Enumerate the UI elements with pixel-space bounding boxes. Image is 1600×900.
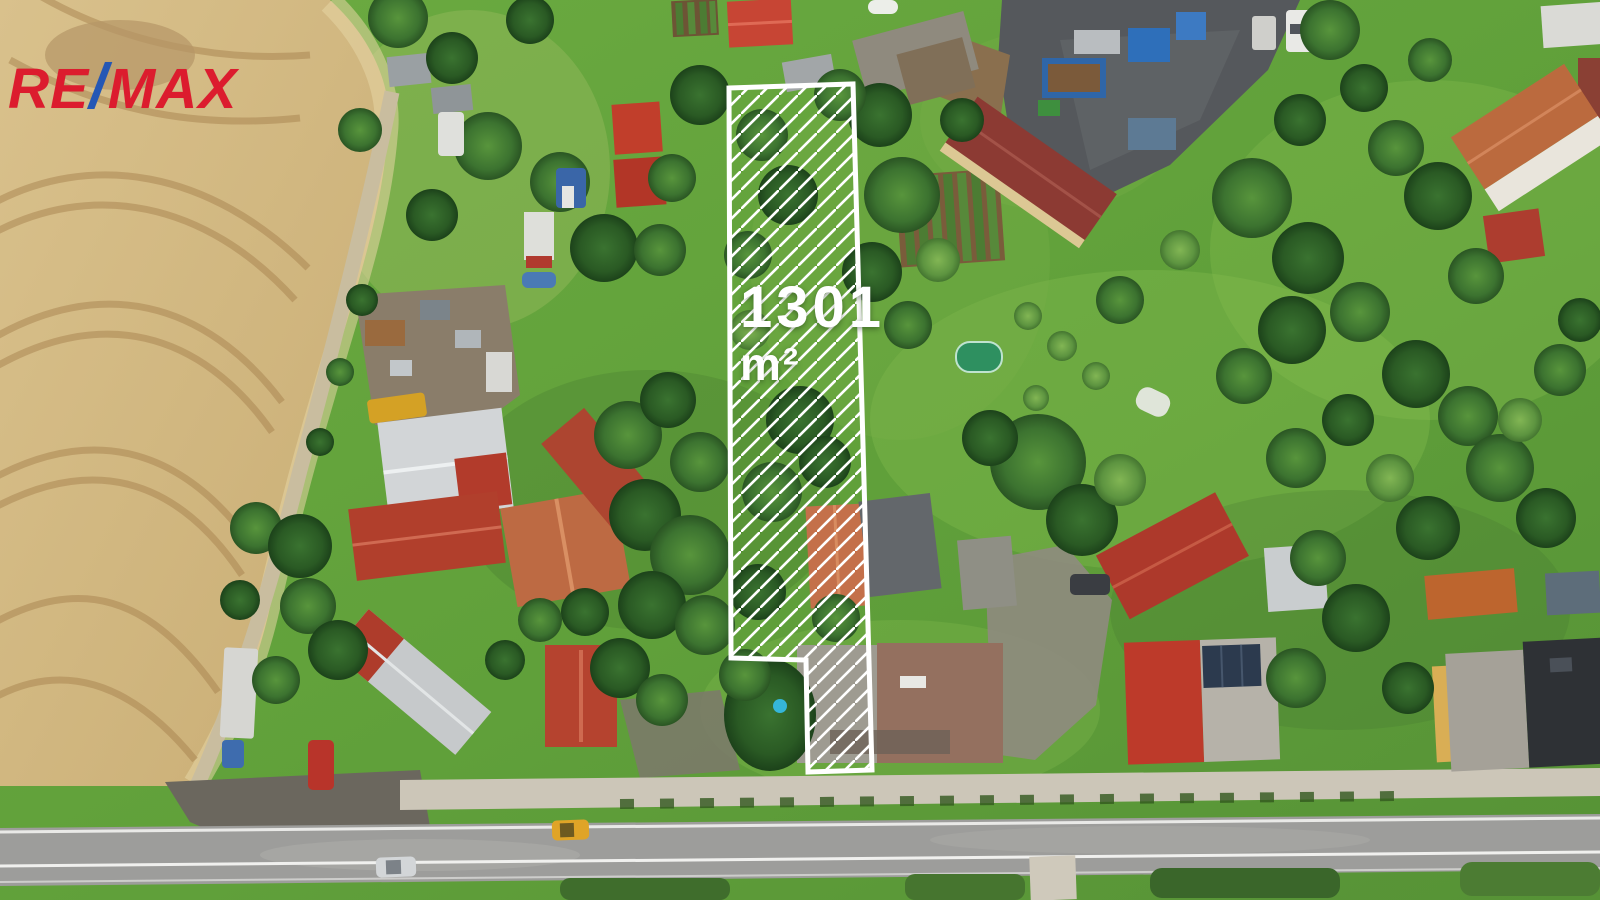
red-roof-top-building	[727, 0, 793, 48]
remax-logo-re: RE	[8, 57, 89, 121]
garden-beds	[671, 0, 719, 37]
orange-roof-small	[1424, 568, 1517, 620]
blue-gray-roof	[1545, 571, 1600, 616]
red-parked-car	[308, 740, 334, 790]
white-trailer	[220, 647, 259, 739]
blue-dumpster	[1128, 28, 1170, 62]
silver-car	[376, 856, 417, 877]
garden-pool	[773, 699, 787, 713]
white-building	[1541, 2, 1600, 48]
remax-logo-max: MAX	[108, 57, 238, 121]
aerial-photo: 1301 m² RE/MAX	[0, 0, 1600, 900]
green-tunnel-greenhouse	[956, 342, 1002, 372]
small-tunnel	[868, 0, 898, 14]
parcel-area-label: 1301 m²	[740, 278, 885, 389]
shed	[431, 84, 473, 114]
remax-logo: RE/MAX	[8, 56, 237, 119]
weathered-shed	[957, 536, 1017, 610]
aerial-scene	[0, 0, 1600, 900]
parcel-area-unit: m²	[740, 339, 885, 390]
dark-shingle-house	[858, 493, 941, 597]
blue-car	[222, 740, 244, 768]
yellow-car	[552, 819, 590, 840]
box-truck	[522, 212, 556, 288]
remax-logo-slash: /	[89, 52, 108, 122]
crossing-path	[1029, 855, 1077, 900]
parcel-area-value: 1301	[740, 278, 885, 339]
shed	[387, 53, 432, 87]
white-van-left	[438, 112, 464, 156]
two-tone-roof-house	[1124, 637, 1280, 764]
yellow-wall-house	[1431, 638, 1600, 773]
blue-tractor	[556, 168, 586, 208]
dark-car	[1070, 574, 1110, 595]
